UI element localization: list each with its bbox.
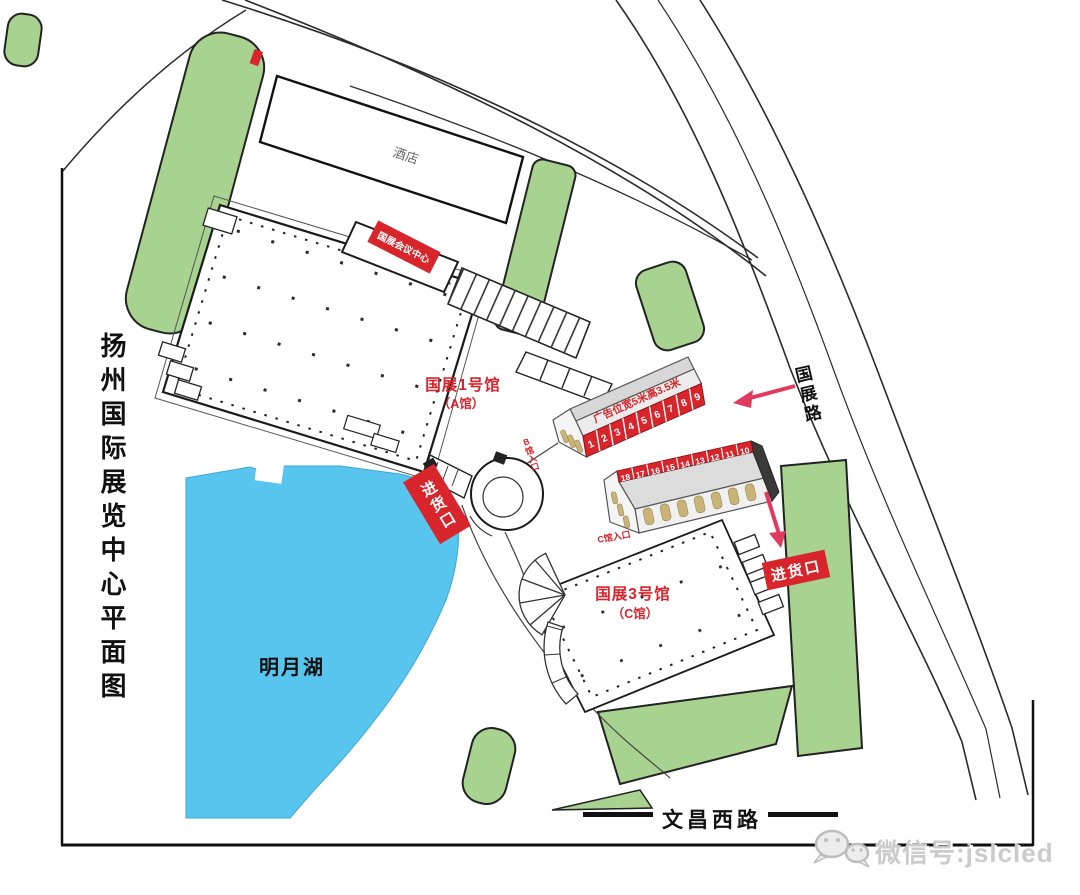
wechat-icon [814, 831, 869, 867]
lake-layer [186, 459, 459, 818]
wenchang-road: 文昌西路 [583, 808, 838, 832]
road-dash [768, 812, 838, 817]
hall-c-entrance-label: C馆入口 [596, 528, 631, 545]
hall1-name-label: 国展1号馆 [425, 375, 501, 394]
green-area [3, 12, 44, 68]
watermark-text: 微信号:jslcled [874, 838, 1054, 868]
temp-hall-c: 18 17 16 15 14 13 12 11 10 [604, 441, 779, 533]
site-plan: 酒店 国展会议中心 [0, 0, 1080, 895]
hall3-building: 国展3号馆 （C馆） [519, 520, 783, 712]
site-plan-canvas: 酒店 国展会议中心 [0, 0, 1080, 895]
road-dash [583, 812, 653, 817]
hall1-annex-label: （A馆） [438, 396, 485, 411]
hotel-building: 酒店 [260, 76, 523, 223]
lake-dock [255, 459, 285, 484]
hall3-annex-label: （C馆） [612, 606, 659, 621]
watermark: 微信号:jslcled 微信号:jslcled [814, 831, 1056, 870]
green-area [598, 686, 792, 784]
wenchang-road-label: 文昌西路 [662, 808, 762, 832]
arrow-left-icon [733, 386, 795, 408]
lake-shape [186, 466, 459, 818]
green-area [632, 258, 707, 354]
guozhan-road-label: 国展路 [791, 364, 824, 427]
green-area [458, 724, 519, 808]
green-area [552, 790, 652, 810]
hall3-name-label: 国展3号馆 [595, 584, 671, 603]
lake-label: 明月湖 [259, 656, 325, 679]
page-title: 扬州国际展览中心平面图 [97, 332, 127, 706]
